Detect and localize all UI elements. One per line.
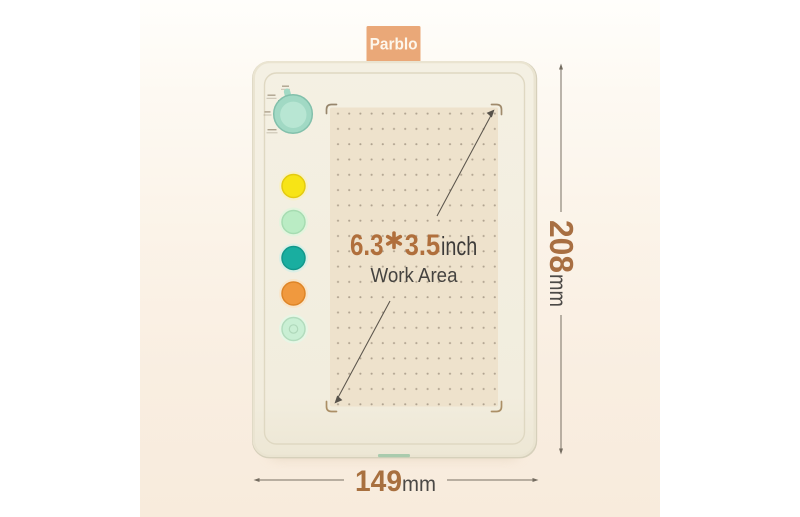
svg-text:Parblo: Parblo — [370, 34, 418, 53]
svg-text:208: 208 — [543, 220, 580, 273]
svg-text:6.3: 6.3 — [350, 229, 384, 262]
svg-text:mm: mm — [545, 274, 571, 307]
svg-text:Work Area: Work Area — [371, 265, 459, 287]
svg-text:149: 149 — [355, 465, 402, 498]
svg-text:mm: mm — [402, 473, 436, 496]
svg-text:3.5: 3.5 — [405, 229, 440, 262]
svg-text:inch: inch — [441, 231, 477, 261]
